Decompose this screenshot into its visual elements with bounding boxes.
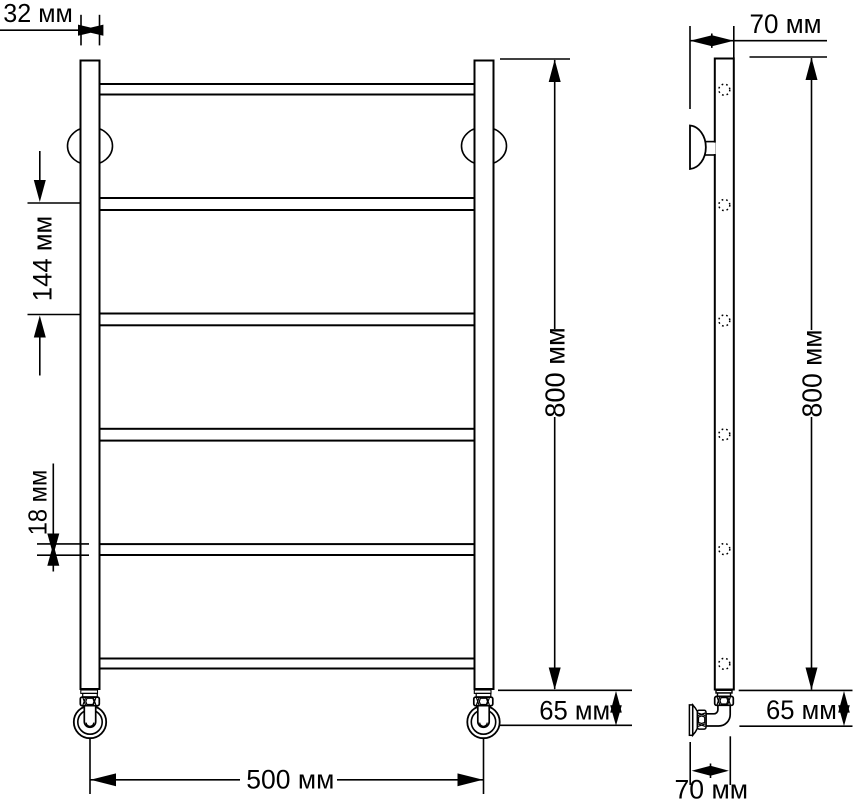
svg-text:70 мм: 70 мм <box>675 775 749 800</box>
svg-text:18 мм: 18 мм <box>23 470 53 536</box>
svg-text:65 мм: 65 мм <box>539 696 610 726</box>
svg-text:70 мм: 70 мм <box>750 9 822 39</box>
svg-text:65 мм: 65 мм <box>766 695 837 725</box>
svg-text:800 мм: 800 мм <box>797 330 828 418</box>
svg-text:144 мм: 144 мм <box>28 216 58 302</box>
svg-text:32 мм: 32 мм <box>3 0 73 28</box>
svg-text:500 мм: 500 мм <box>246 765 334 795</box>
svg-text:800 мм: 800 мм <box>540 327 571 418</box>
